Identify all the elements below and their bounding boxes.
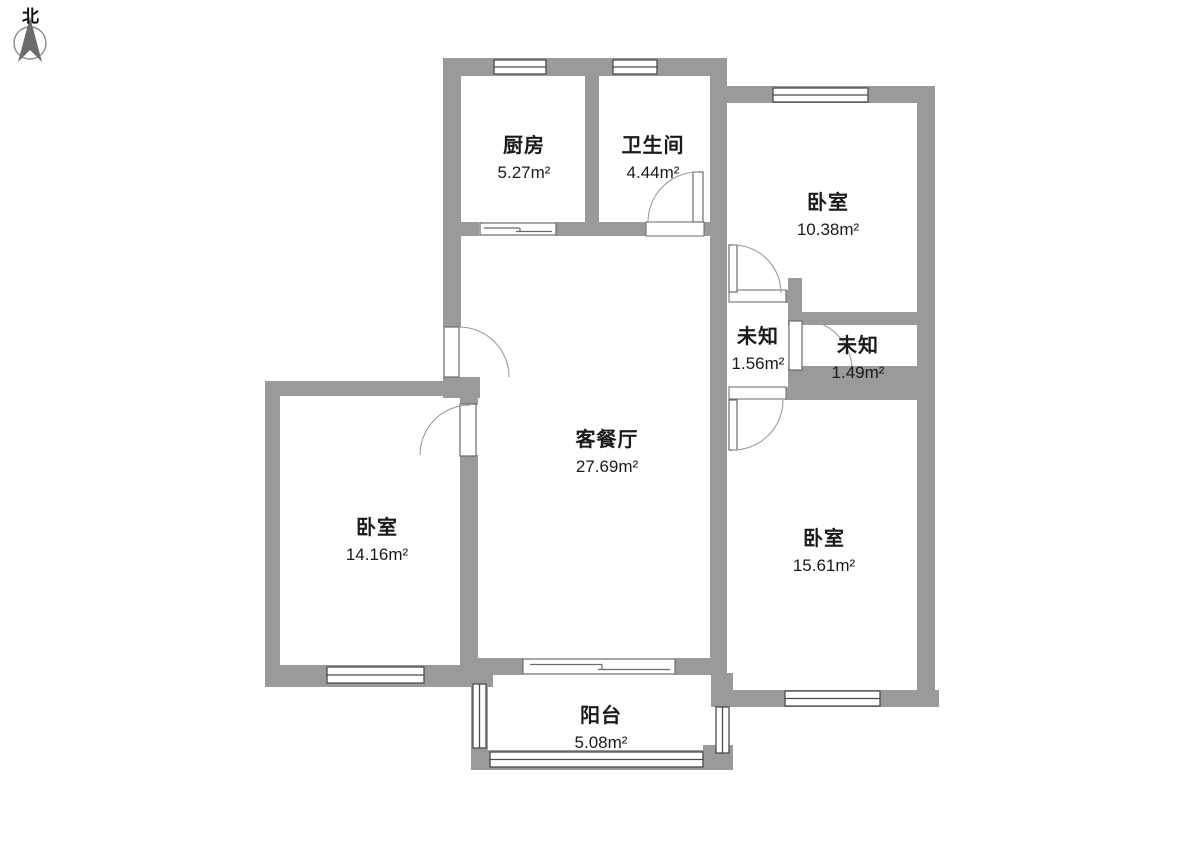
floorplan-drawing (0, 0, 1200, 860)
entrance-door (444, 327, 509, 377)
compass-north-label: 北 (22, 2, 39, 27)
balcony-bottom-window (490, 752, 703, 767)
wall-balcony-right-upper (711, 673, 733, 707)
bathroom-door (646, 172, 704, 236)
bedroom-bottom-right-window (785, 691, 880, 706)
bathroom-window (613, 60, 657, 74)
doors (420, 172, 852, 456)
bedroom-top-right-window (773, 88, 868, 102)
bedroom-top-right-door (729, 245, 786, 302)
wall-living-bottom-a (460, 658, 523, 675)
wall-living-bottom-b (675, 658, 727, 675)
wall-bedroom15-top-bit (785, 387, 802, 400)
wall-unknown-right-bottom (788, 366, 935, 383)
bedroom-left-window (327, 667, 424, 683)
wall-bedroom-left-right-lower (460, 455, 478, 687)
wall-living-top-b (556, 222, 646, 236)
wall-kitchen-left (443, 58, 461, 237)
bedroom-left-door (420, 404, 476, 456)
unknown-connecting-door (789, 320, 852, 370)
wall-kitchen-bath-divider (585, 58, 599, 230)
wall-bottom-right-corner (917, 690, 939, 707)
wall-bedroom-left-top (265, 381, 463, 396)
wall-living-left-upper (443, 222, 461, 327)
wall-living-right-long (710, 236, 727, 673)
wall-bedroom-left-left (265, 381, 280, 687)
balcony-right-window (716, 707, 729, 753)
wall-bedroom15-top (802, 383, 935, 400)
floorplan-canvas: 北 厨房 5.27m² 卫生间 4.44m² 卧室 10.38m² 未知 1.5… (0, 0, 1200, 860)
wall-living-top-c (704, 222, 727, 236)
wall-unknown-right-top (788, 312, 935, 325)
bedroom-bottom-right-door (729, 387, 786, 450)
balcony-sliding-door (523, 659, 675, 674)
sliding-doors (480, 223, 675, 674)
kitchen-window (494, 60, 546, 74)
kitchen-sliding-door (480, 223, 556, 235)
balcony-left-window (473, 684, 486, 748)
wall-bathroom-right (710, 58, 727, 238)
